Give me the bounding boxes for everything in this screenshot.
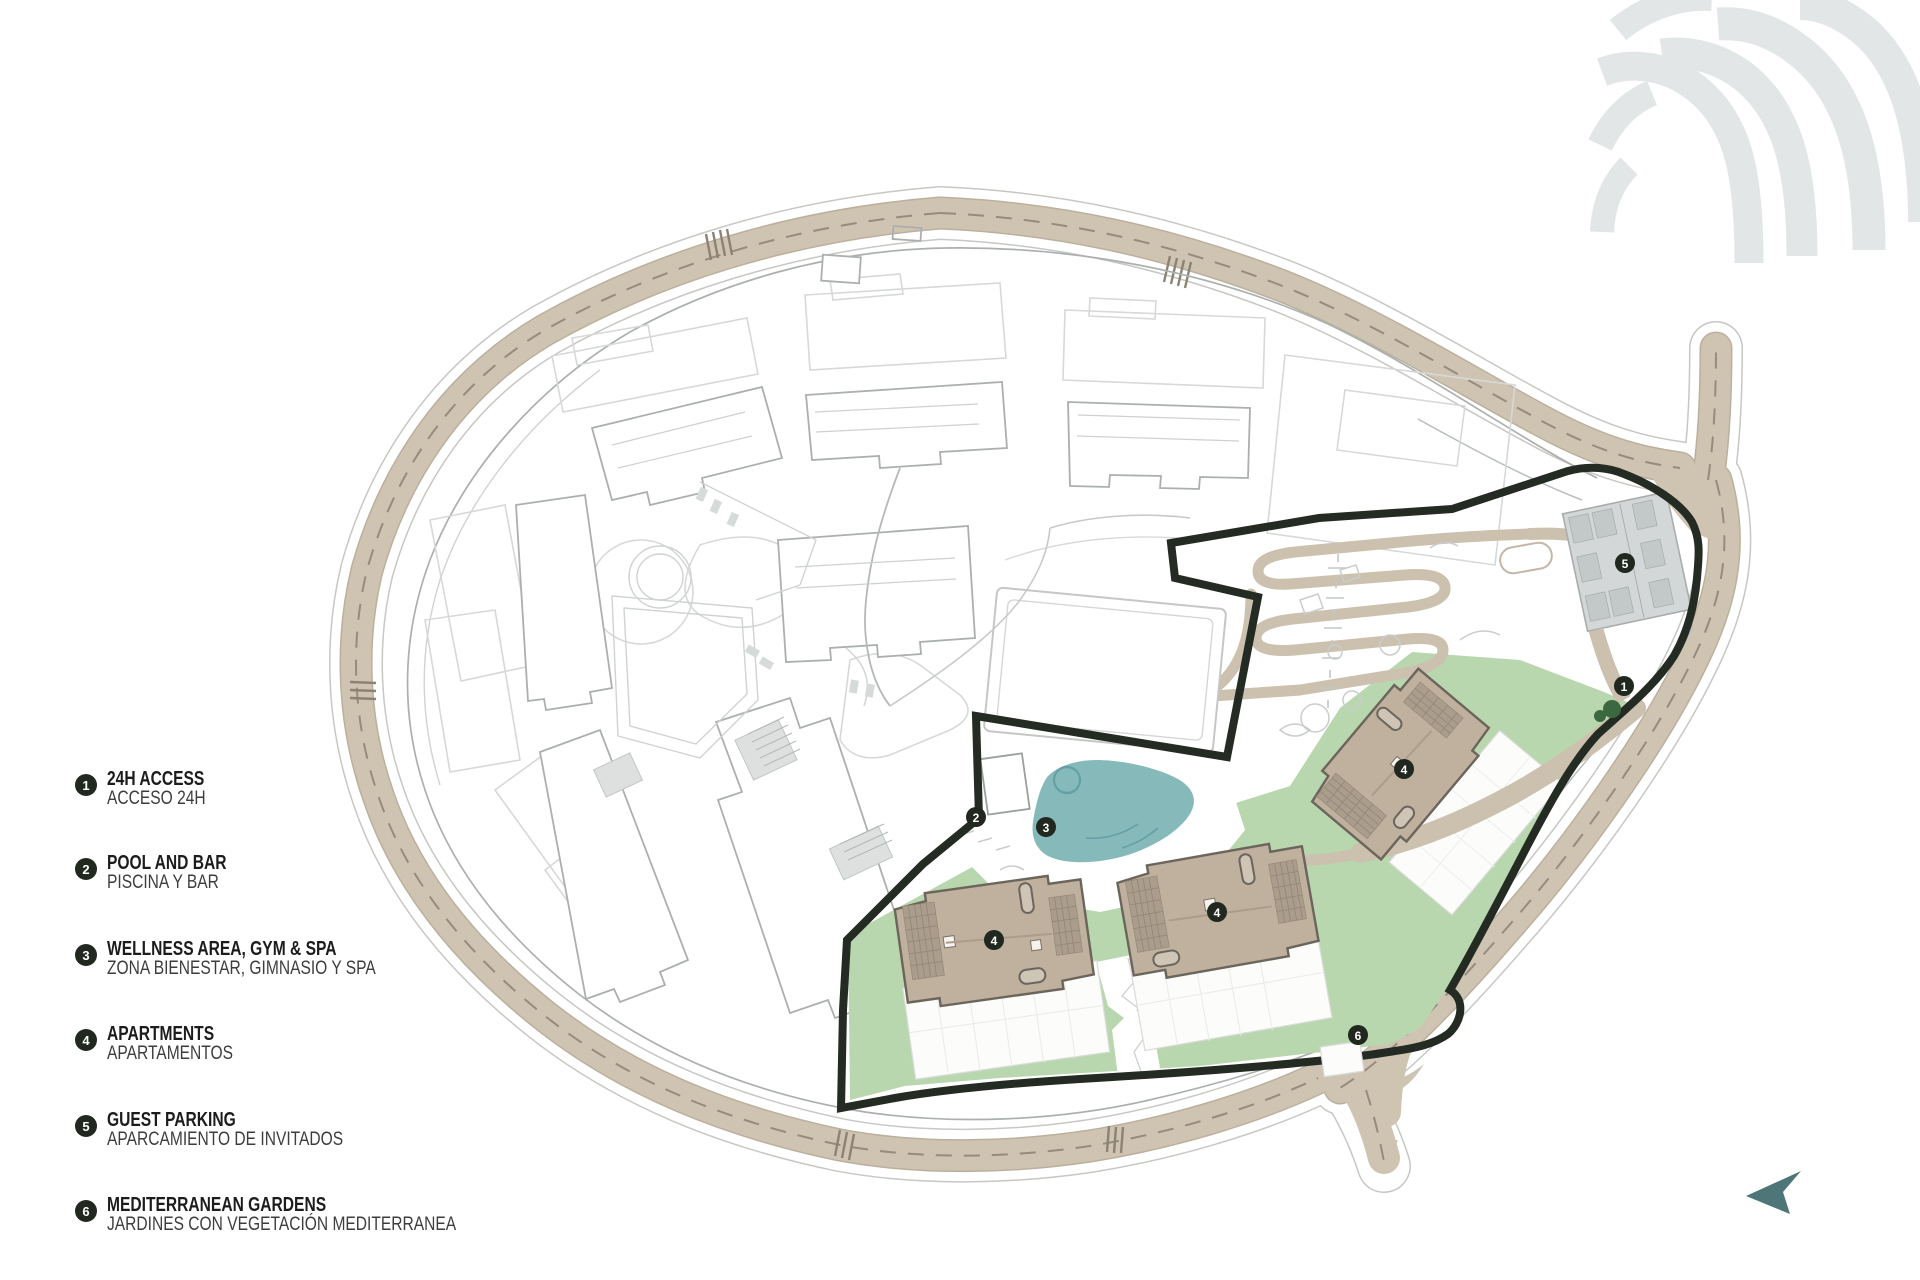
svg-text:ACCESO 24H: ACCESO 24H: [107, 787, 206, 809]
svg-text:1: 1: [82, 778, 89, 793]
svg-text:ZONA BIENESTAR, GIMNASIO Y SPA: ZONA BIENESTAR, GIMNASIO Y SPA: [107, 957, 376, 979]
svg-text:APARCAMIENTO DE INVITADOS: APARCAMIENTO DE INVITADOS: [107, 1128, 343, 1150]
svg-text:APARTAMENTOS: APARTAMENTOS: [107, 1042, 233, 1064]
svg-text:4: 4: [991, 934, 998, 948]
svg-text:4: 4: [1401, 763, 1408, 777]
svg-text:3: 3: [82, 948, 89, 963]
svg-text:3: 3: [1043, 821, 1050, 835]
svg-text:5: 5: [1622, 557, 1629, 571]
svg-text:PISCINA Y BAR: PISCINA Y BAR: [107, 871, 219, 893]
svg-text:4: 4: [1214, 906, 1221, 920]
svg-text:5: 5: [82, 1119, 89, 1134]
svg-text:1: 1: [1621, 680, 1628, 694]
svg-text:6: 6: [82, 1204, 89, 1219]
svg-text:4: 4: [82, 1033, 90, 1048]
svg-text:2: 2: [973, 811, 980, 825]
svg-text:2: 2: [82, 862, 89, 877]
svg-text:JARDINES CON VEGETACIÓN MEDITE: JARDINES CON VEGETACIÓN MEDITERRANEA: [107, 1213, 457, 1235]
svg-text:6: 6: [1355, 1029, 1362, 1043]
